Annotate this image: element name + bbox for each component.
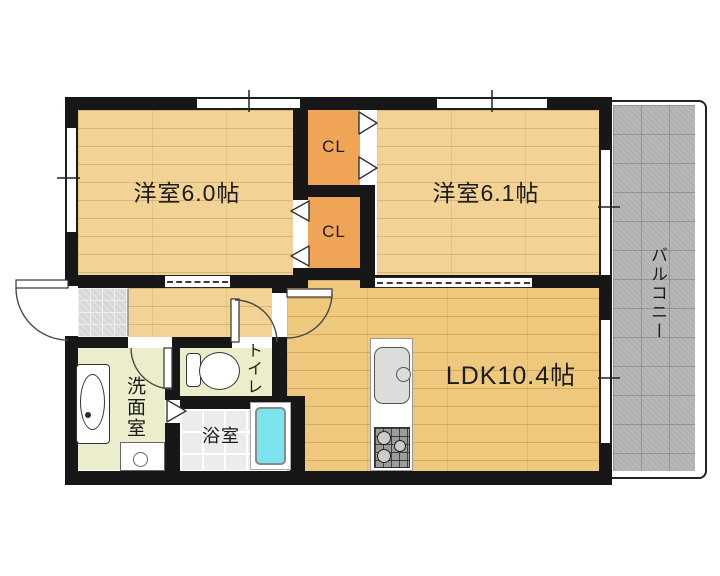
basin-faucet-dot	[85, 412, 91, 418]
bathtub	[255, 407, 286, 465]
wash-basin	[80, 374, 105, 430]
entry-door-opening	[65, 286, 78, 336]
wall-bottom	[65, 471, 612, 485]
entry-door-arc	[16, 288, 68, 340]
closet-upper-label: CL	[315, 138, 353, 157]
toilet-bowl	[199, 352, 240, 390]
sliding-door-bedroom1	[165, 275, 230, 288]
sliding-door-track	[377, 282, 530, 284]
genkan-tile-floor	[78, 288, 128, 337]
ldk-label: LDK10.4帖	[411, 363, 611, 391]
bathroom-label: 浴室	[188, 427, 254, 447]
balcony-label: バルコニー	[644, 246, 666, 346]
closet-lower-door-opening	[293, 200, 308, 268]
washroom-door-opening	[128, 337, 172, 348]
gas-stove	[374, 427, 410, 468]
bath-door-opening	[165, 400, 180, 423]
sliding-door-track	[167, 281, 228, 283]
closet-lower-label: CL	[315, 223, 353, 242]
bedroom1-label: 洋室6.0帖	[97, 181, 277, 206]
sink-faucet	[396, 367, 411, 382]
stove-burner	[377, 431, 391, 445]
window-bedroom2-right	[599, 150, 612, 275]
washroom-label: 洗面室	[120, 376, 144, 460]
window-bedroom1-left	[65, 128, 78, 232]
toilet-label: トイレ	[241, 342, 261, 398]
stove-burner	[377, 449, 391, 463]
wall-bath-right	[290, 396, 305, 485]
entry-door-leaf	[16, 280, 68, 288]
sliding-door-bedroom2	[375, 277, 532, 288]
floor-plan: 洋室6.0帖 洋室6.1帖 LDK10.4帖 CL CL 洗面室 トイレ 浴室 …	[0, 0, 720, 576]
wall-closet-mid	[293, 185, 375, 197]
ldk-door-opening	[272, 293, 287, 337]
bedroom2-label: 洋室6.1帖	[396, 181, 576, 206]
window-bedroom1-top	[197, 97, 300, 110]
closet-upper-door-opening	[360, 110, 375, 185]
window-bedroom2-top	[437, 97, 547, 110]
stove-burner	[394, 440, 406, 452]
